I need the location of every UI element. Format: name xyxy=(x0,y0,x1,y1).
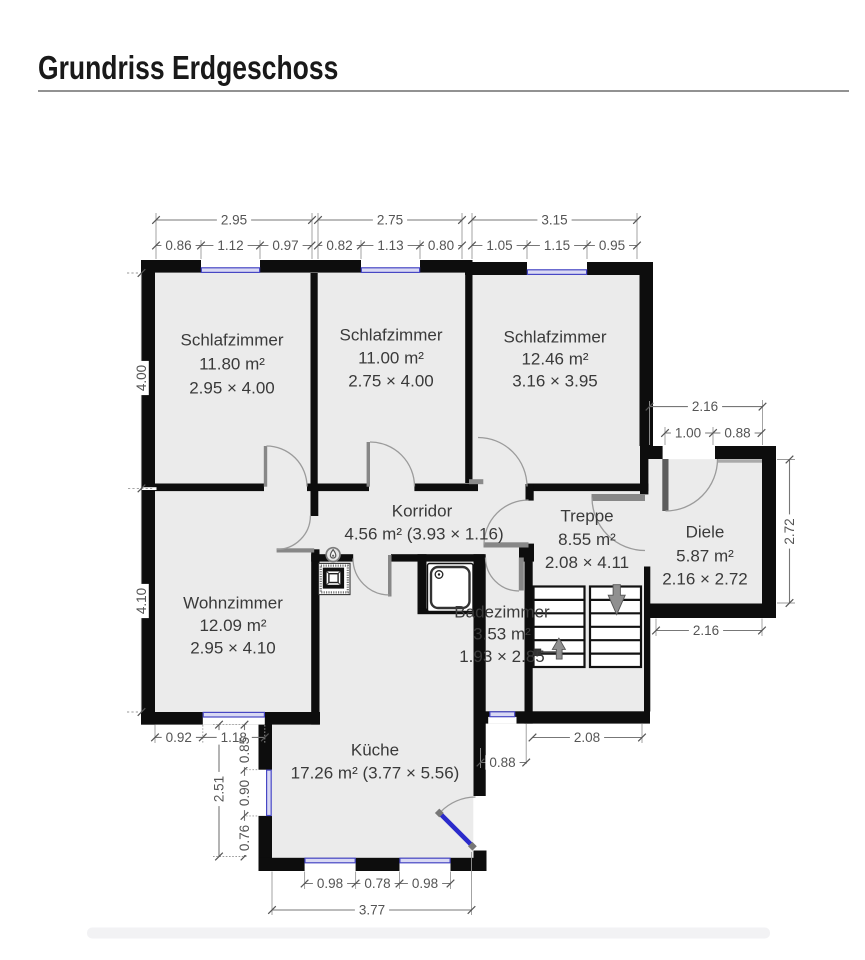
svg-text:0.80: 0.80 xyxy=(428,238,454,253)
svg-text:Schlafzimmer: Schlafzimmer xyxy=(504,328,607,347)
svg-text:12.09 m²: 12.09 m² xyxy=(199,616,266,635)
svg-text:Korridor: Korridor xyxy=(392,502,453,521)
svg-text:1.18: 1.18 xyxy=(221,730,247,745)
svg-text:0.78: 0.78 xyxy=(364,876,390,891)
svg-text:Schlafzimmer: Schlafzimmer xyxy=(340,326,443,345)
svg-text:Treppe: Treppe xyxy=(560,507,613,526)
svg-text:3.16 × 3.95: 3.16 × 3.95 xyxy=(512,372,598,391)
svg-text:3.15: 3.15 xyxy=(541,213,567,228)
svg-text:2.75: 2.75 xyxy=(377,213,403,228)
svg-text:1.05: 1.05 xyxy=(486,238,512,253)
svg-text:0.82: 0.82 xyxy=(326,238,352,253)
svg-text:2.16 × 2.72: 2.16 × 2.72 xyxy=(662,570,748,589)
svg-text:0.76: 0.76 xyxy=(237,825,252,851)
svg-text:0.97: 0.97 xyxy=(272,238,298,253)
svg-text:0.86: 0.86 xyxy=(165,238,191,253)
svg-text:2.75 × 4.00: 2.75 × 4.00 xyxy=(348,372,434,391)
svg-text:3.53 m²: 3.53 m² xyxy=(473,625,531,644)
svg-text:0.88: 0.88 xyxy=(724,426,750,441)
svg-text:Diele: Diele xyxy=(686,523,725,542)
svg-text:Badezimmer: Badezimmer xyxy=(454,603,550,622)
svg-text:Küche: Küche xyxy=(351,741,399,760)
svg-text:Schlafzimmer: Schlafzimmer xyxy=(181,331,284,350)
svg-text:4.56 m² (3.93 × 1.16): 4.56 m² (3.93 × 1.16) xyxy=(344,525,503,544)
svg-text:11.00 m²: 11.00 m² xyxy=(358,349,424,368)
svg-text:1.13: 1.13 xyxy=(377,238,403,253)
svg-text:0.92: 0.92 xyxy=(166,730,192,745)
svg-text:1.00: 1.00 xyxy=(675,426,701,441)
svg-text:2.16: 2.16 xyxy=(693,623,719,638)
svg-text:5.87 m²: 5.87 m² xyxy=(676,547,734,566)
svg-text:0.90: 0.90 xyxy=(237,780,252,806)
svg-text:2.95 × 4.00: 2.95 × 4.00 xyxy=(189,379,275,398)
svg-text:12.46 m²: 12.46 m² xyxy=(521,350,588,369)
svg-text:2.08 × 4.11: 2.08 × 4.11 xyxy=(545,553,629,572)
svg-text:2.16: 2.16 xyxy=(692,399,718,414)
svg-text:2.95 × 4.10: 2.95 × 4.10 xyxy=(190,639,276,658)
svg-text:3.77: 3.77 xyxy=(359,903,385,918)
svg-text:1.15: 1.15 xyxy=(544,238,570,253)
svg-text:2.51: 2.51 xyxy=(212,776,227,802)
svg-text:2.72: 2.72 xyxy=(782,518,797,544)
svg-text:17.26 m² (3.77 × 5.56): 17.26 m² (3.77 × 5.56) xyxy=(291,764,460,783)
svg-text:4.10: 4.10 xyxy=(134,588,149,614)
svg-text:Grundriss Erdgeschoss: Grundriss Erdgeschoss xyxy=(38,50,338,86)
svg-text:8.55 m²: 8.55 m² xyxy=(558,530,616,549)
svg-text:1.12: 1.12 xyxy=(217,238,243,253)
svg-text:4.00: 4.00 xyxy=(134,365,149,391)
svg-text:Wohnzimmer: Wohnzimmer xyxy=(183,594,283,613)
svg-text:2.95: 2.95 xyxy=(221,213,247,228)
svg-text:11.80 m²: 11.80 m² xyxy=(199,355,265,374)
svg-text:0.88: 0.88 xyxy=(489,755,515,770)
svg-text:0.98: 0.98 xyxy=(412,876,438,891)
svg-text:2.08: 2.08 xyxy=(574,730,600,745)
svg-text:0.95: 0.95 xyxy=(599,238,625,253)
svg-text:1.93 × 2.85: 1.93 × 2.85 xyxy=(459,647,545,666)
svg-text:0.98: 0.98 xyxy=(317,876,343,891)
